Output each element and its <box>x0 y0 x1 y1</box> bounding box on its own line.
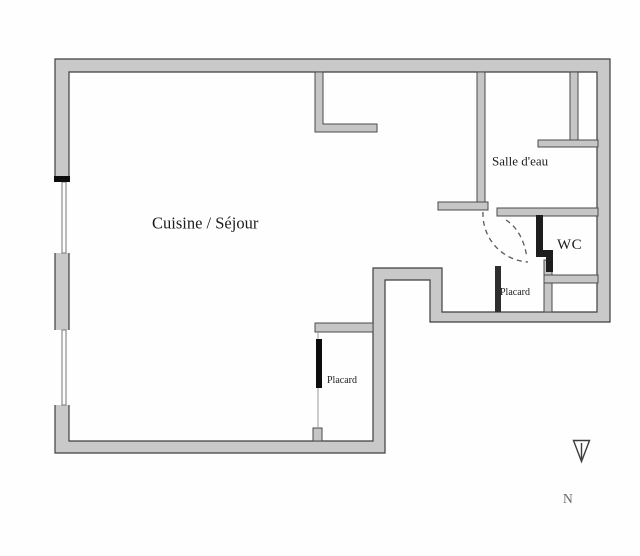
hall-stub-wall <box>438 202 488 210</box>
placard-door-leaf <box>316 339 322 388</box>
window-lower <box>53 330 71 405</box>
compass-north-label: N <box>563 491 573 506</box>
shaft-wall-horizontal <box>538 140 598 147</box>
wall-end-cap <box>54 176 70 182</box>
room-label-placard-entry: Placard <box>500 287 530 298</box>
bottom-placard-top-wall <box>315 323 373 332</box>
wc-closet-divider <box>544 275 598 283</box>
salle-deau-bottom-wall <box>497 208 598 216</box>
shaft-wall-vertical <box>570 72 578 143</box>
room-label-salle-deau: Salle d'eau <box>492 154 549 169</box>
room-label-cuisine-sejour: Cuisine / Séjour <box>152 214 259 233</box>
outer-walls <box>55 59 610 453</box>
room-label-wc: WC <box>557 237 582 253</box>
bottom-placard-bottom-stub <box>313 428 322 441</box>
salle-deau-door-arc <box>483 212 528 262</box>
salle-deau-left-wall <box>477 72 485 203</box>
room-label-placard-bottom: Placard <box>327 375 357 386</box>
floor-plan-drawing: Cuisine / Séjour Salle d'eau WC Placard … <box>0 0 640 556</box>
wc-door-arc <box>506 220 527 258</box>
kitchen-partition <box>315 72 377 132</box>
window-upper <box>53 182 71 253</box>
north-arrow-icon <box>574 441 590 462</box>
floor-plan-canvas: Cuisine / Séjour Salle d'eau WC Placard … <box>0 0 640 556</box>
door-swing-arcs <box>483 212 528 262</box>
